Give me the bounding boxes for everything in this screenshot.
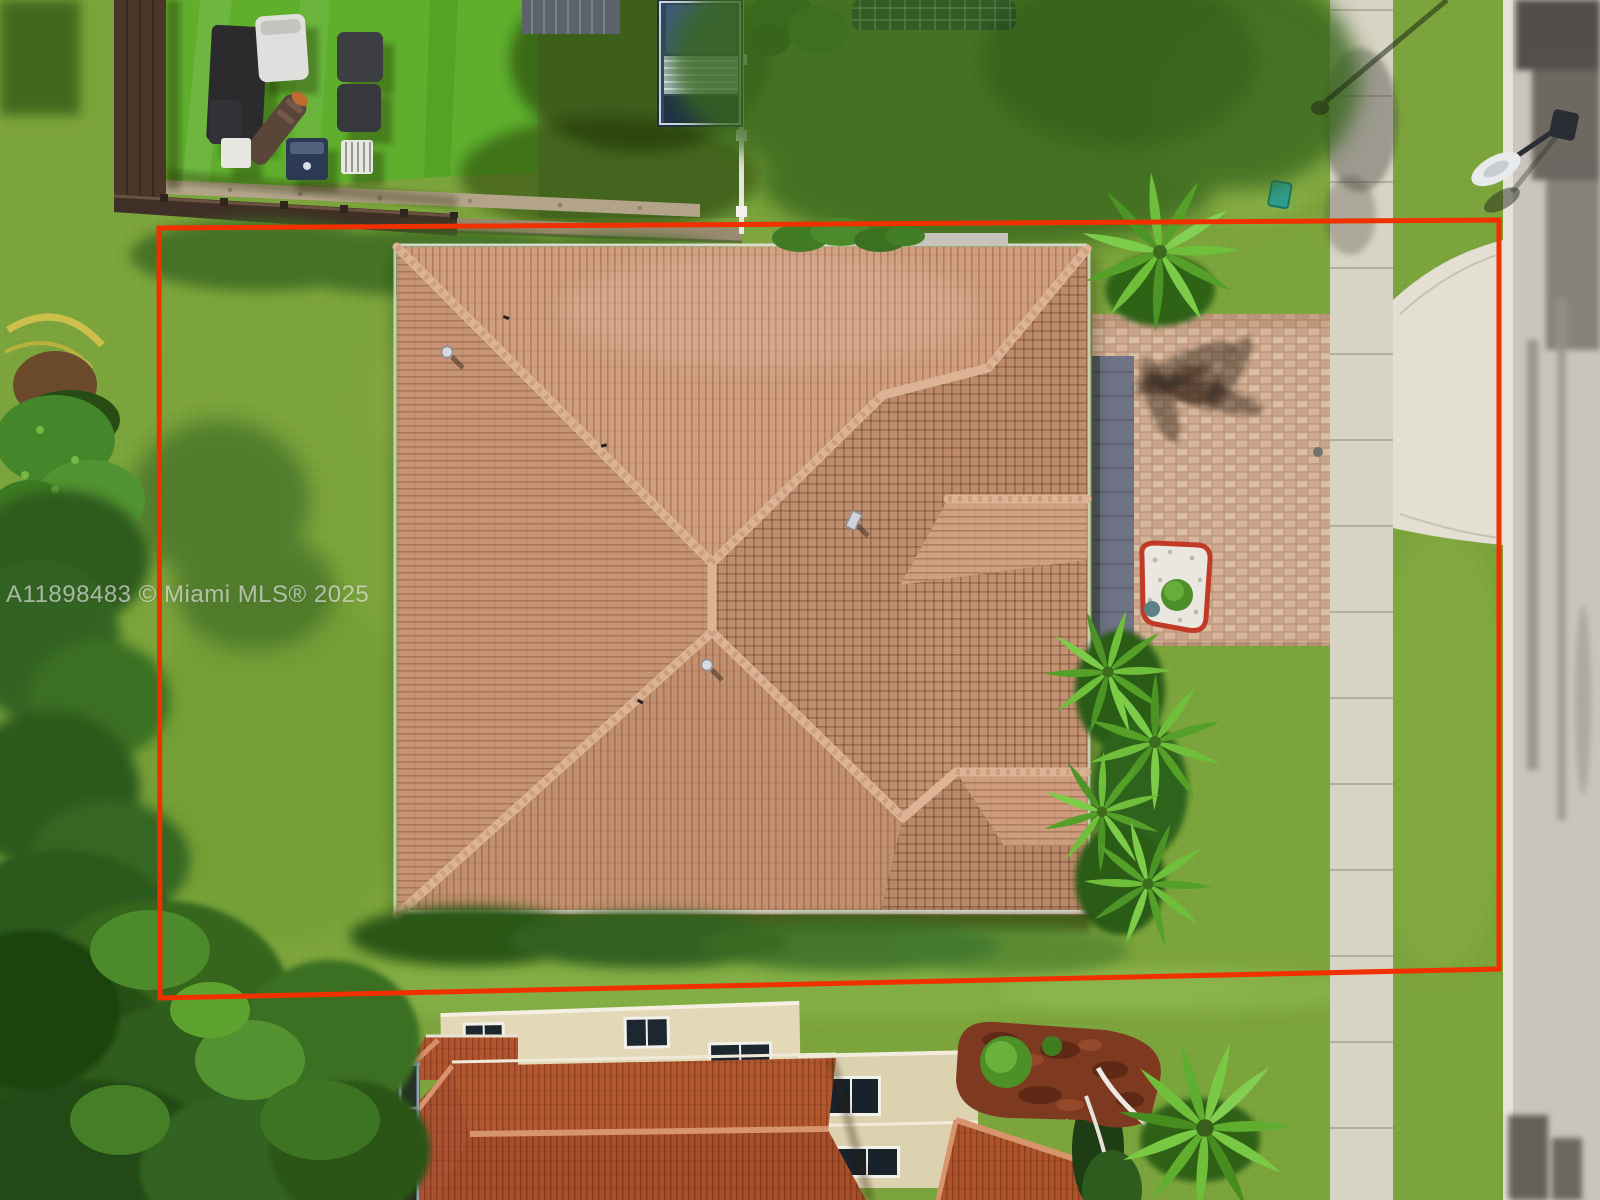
paver-driveway [1092,314,1330,646]
main-house-roof [392,245,1098,926]
mls-watermark: A11898483 © Miami MLS® 2025 [6,581,369,609]
patio-furniture [206,13,394,192]
aerial-photo: A11898483 © Miami MLS® 2025 [0,0,1600,1200]
sidewalk [1322,0,1398,1200]
street [1503,0,1600,1200]
landscape-rock-bed [1142,543,1210,631]
window [624,1016,671,1049]
drain-cap [1313,447,1323,457]
louvered-structure [522,0,620,34]
